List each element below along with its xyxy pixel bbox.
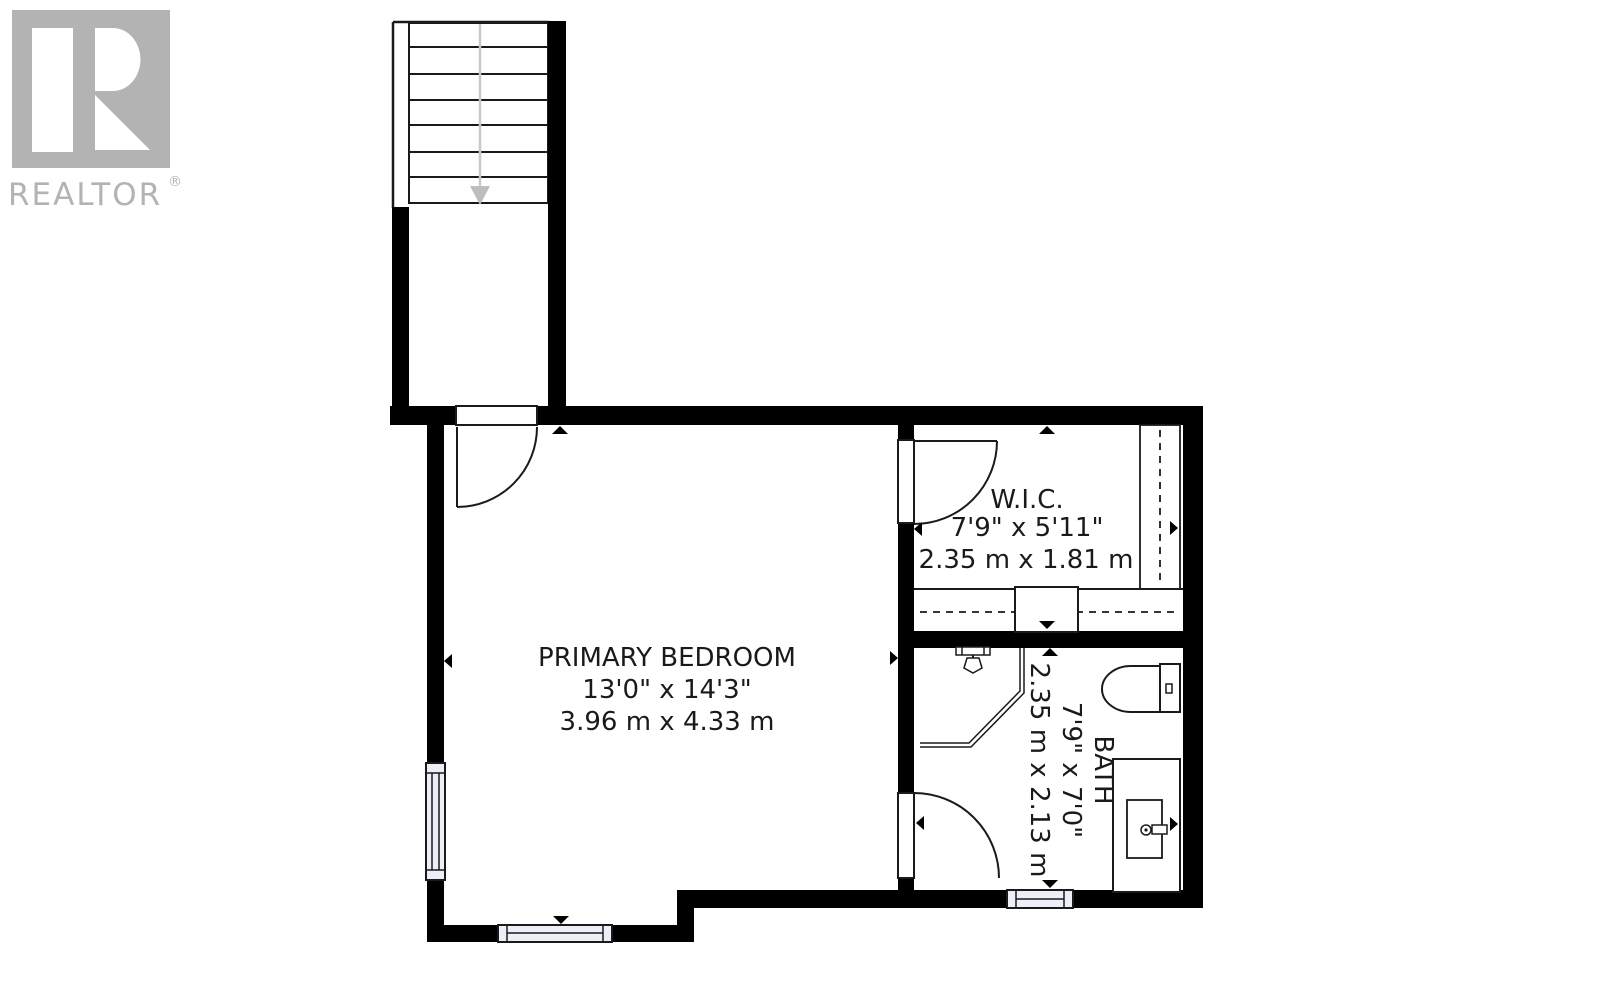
wall-divider-middle bbox=[898, 523, 914, 793]
wall-right-outer bbox=[1183, 406, 1203, 908]
wall-bottom-left-of-window bbox=[427, 925, 498, 942]
floorplan-page: REALTOR ® bbox=[0, 0, 1600, 1007]
wall-top-left-nub bbox=[390, 406, 456, 425]
bath-door-frame bbox=[898, 793, 914, 878]
marker-wic-top bbox=[1039, 426, 1055, 434]
wall-lower-middle bbox=[677, 890, 1007, 908]
bedroom-door-arc bbox=[457, 427, 537, 507]
realtor-logo: REALTOR ® bbox=[8, 10, 182, 213]
bath-door-arc bbox=[914, 793, 999, 878]
floorplan-svg: REALTOR ® bbox=[0, 0, 1600, 1007]
wall-stair-right bbox=[548, 21, 566, 425]
vanity-sink-icon bbox=[1113, 759, 1180, 892]
room-dim-metric-primary-bedroom: 3.96 m x 4.33 m bbox=[560, 707, 775, 737]
room-dim-metric-bath: 2.35 m x 2.13 m bbox=[1024, 663, 1054, 878]
wall-divider-bottom bbox=[898, 878, 914, 908]
registered-trademark-symbol: ® bbox=[168, 174, 182, 190]
wall-stair-left bbox=[392, 207, 409, 425]
bedroom-bottom-window bbox=[498, 925, 612, 942]
marker-bedroom-left bbox=[444, 654, 452, 668]
marker-bedroom-right bbox=[890, 651, 898, 665]
marker-bath-door bbox=[916, 816, 924, 830]
room-dim-imperial-primary-bedroom: 13'0" x 14'3" bbox=[582, 675, 751, 705]
windows bbox=[426, 763, 1073, 942]
room-dim-imperial-wic: 7'9" x 5'11" bbox=[951, 513, 1104, 543]
staircase bbox=[393, 22, 549, 208]
marker-bath-top bbox=[1042, 648, 1058, 656]
room-label-bath: BATH bbox=[1088, 735, 1118, 804]
realtor-logo-r-bar bbox=[32, 28, 73, 152]
bedroom-left-window bbox=[426, 763, 445, 880]
toilet-icon bbox=[1102, 664, 1180, 712]
wall-left-upper bbox=[427, 406, 444, 763]
room-dim-imperial-bath: 7'9" x 7'0" bbox=[1056, 702, 1086, 838]
marker-bedroom-bottom bbox=[553, 916, 569, 924]
room-dim-metric-wic: 2.35 m x 1.81 m bbox=[919, 545, 1134, 575]
wic-door-arc bbox=[914, 441, 997, 524]
bedroom-door-frame bbox=[456, 406, 537, 425]
room-labels: PRIMARY BEDROOM 13'0" x 14'3" 3.96 m x 4… bbox=[538, 485, 1133, 877]
bath-window bbox=[1007, 890, 1073, 908]
shower-head-icon bbox=[956, 647, 990, 673]
wic-door-frame bbox=[898, 440, 914, 523]
room-label-primary-bedroom: PRIMARY BEDROOM bbox=[538, 643, 796, 673]
direction-markers bbox=[444, 426, 1178, 924]
marker-bedroom-top bbox=[552, 426, 568, 434]
wall-bath-top bbox=[898, 631, 1183, 648]
wall-divider-top bbox=[898, 406, 914, 440]
realtor-logo-text: REALTOR bbox=[8, 177, 162, 213]
wall-top bbox=[537, 406, 1203, 425]
room-label-wic: W.I.C. bbox=[990, 485, 1063, 515]
marker-bath-bottom bbox=[1042, 880, 1058, 888]
